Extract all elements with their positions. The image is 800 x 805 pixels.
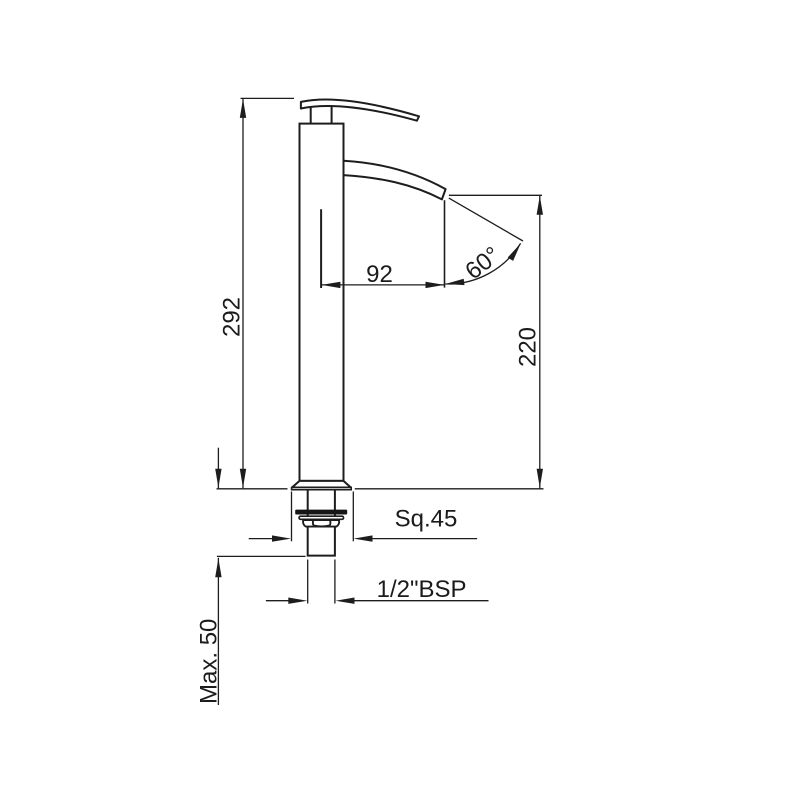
svg-text:1/2"BSP: 1/2"BSP bbox=[377, 576, 467, 603]
svg-text:292: 292 bbox=[218, 297, 245, 337]
svg-text:220: 220 bbox=[514, 327, 541, 367]
svg-text:Max. 50: Max. 50 bbox=[196, 619, 223, 704]
svg-text:Sq.45: Sq.45 bbox=[395, 506, 458, 533]
svg-text:92: 92 bbox=[366, 261, 393, 288]
